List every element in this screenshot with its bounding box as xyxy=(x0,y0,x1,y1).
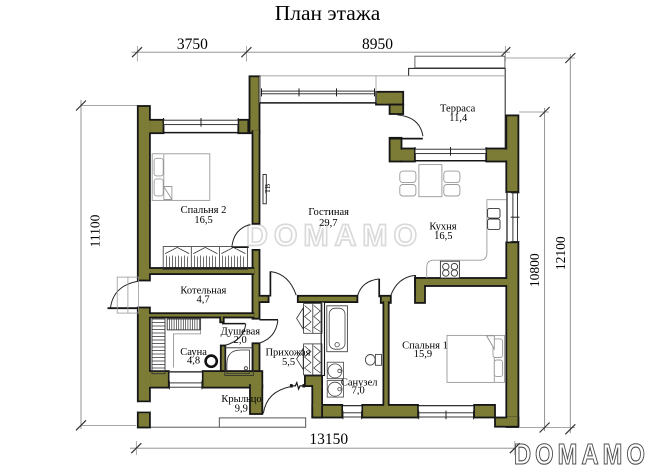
svg-text:9,9: 9,9 xyxy=(235,404,248,415)
svg-text:5,5: 5,5 xyxy=(282,357,295,368)
svg-text:12100: 12100 xyxy=(553,236,568,270)
svg-text:10800: 10800 xyxy=(527,253,542,287)
svg-text:16,5: 16,5 xyxy=(434,231,452,242)
svg-text:План этажа: План этажа xyxy=(275,1,381,25)
svg-text:4,8: 4,8 xyxy=(187,356,200,367)
svg-text:3750: 3750 xyxy=(177,36,208,53)
svg-text:7,0: 7,0 xyxy=(352,385,365,396)
svg-text:13150: 13150 xyxy=(309,431,348,448)
svg-text:11,4: 11,4 xyxy=(449,113,468,124)
svg-text:DOMAMO: DOMAMO xyxy=(514,439,649,470)
svg-text:29,7: 29,7 xyxy=(319,218,337,229)
svg-text:2,0: 2,0 xyxy=(234,335,247,346)
svg-text:16,5: 16,5 xyxy=(194,215,212,226)
svg-text:15,9: 15,9 xyxy=(414,349,432,360)
svg-text:11100: 11100 xyxy=(88,214,103,247)
svg-text:4,7: 4,7 xyxy=(196,294,209,305)
svg-text:8950: 8950 xyxy=(362,36,393,53)
svg-text:Гостиная: Гостиная xyxy=(308,207,349,218)
svg-text:ТВ: ТВ xyxy=(263,184,272,194)
